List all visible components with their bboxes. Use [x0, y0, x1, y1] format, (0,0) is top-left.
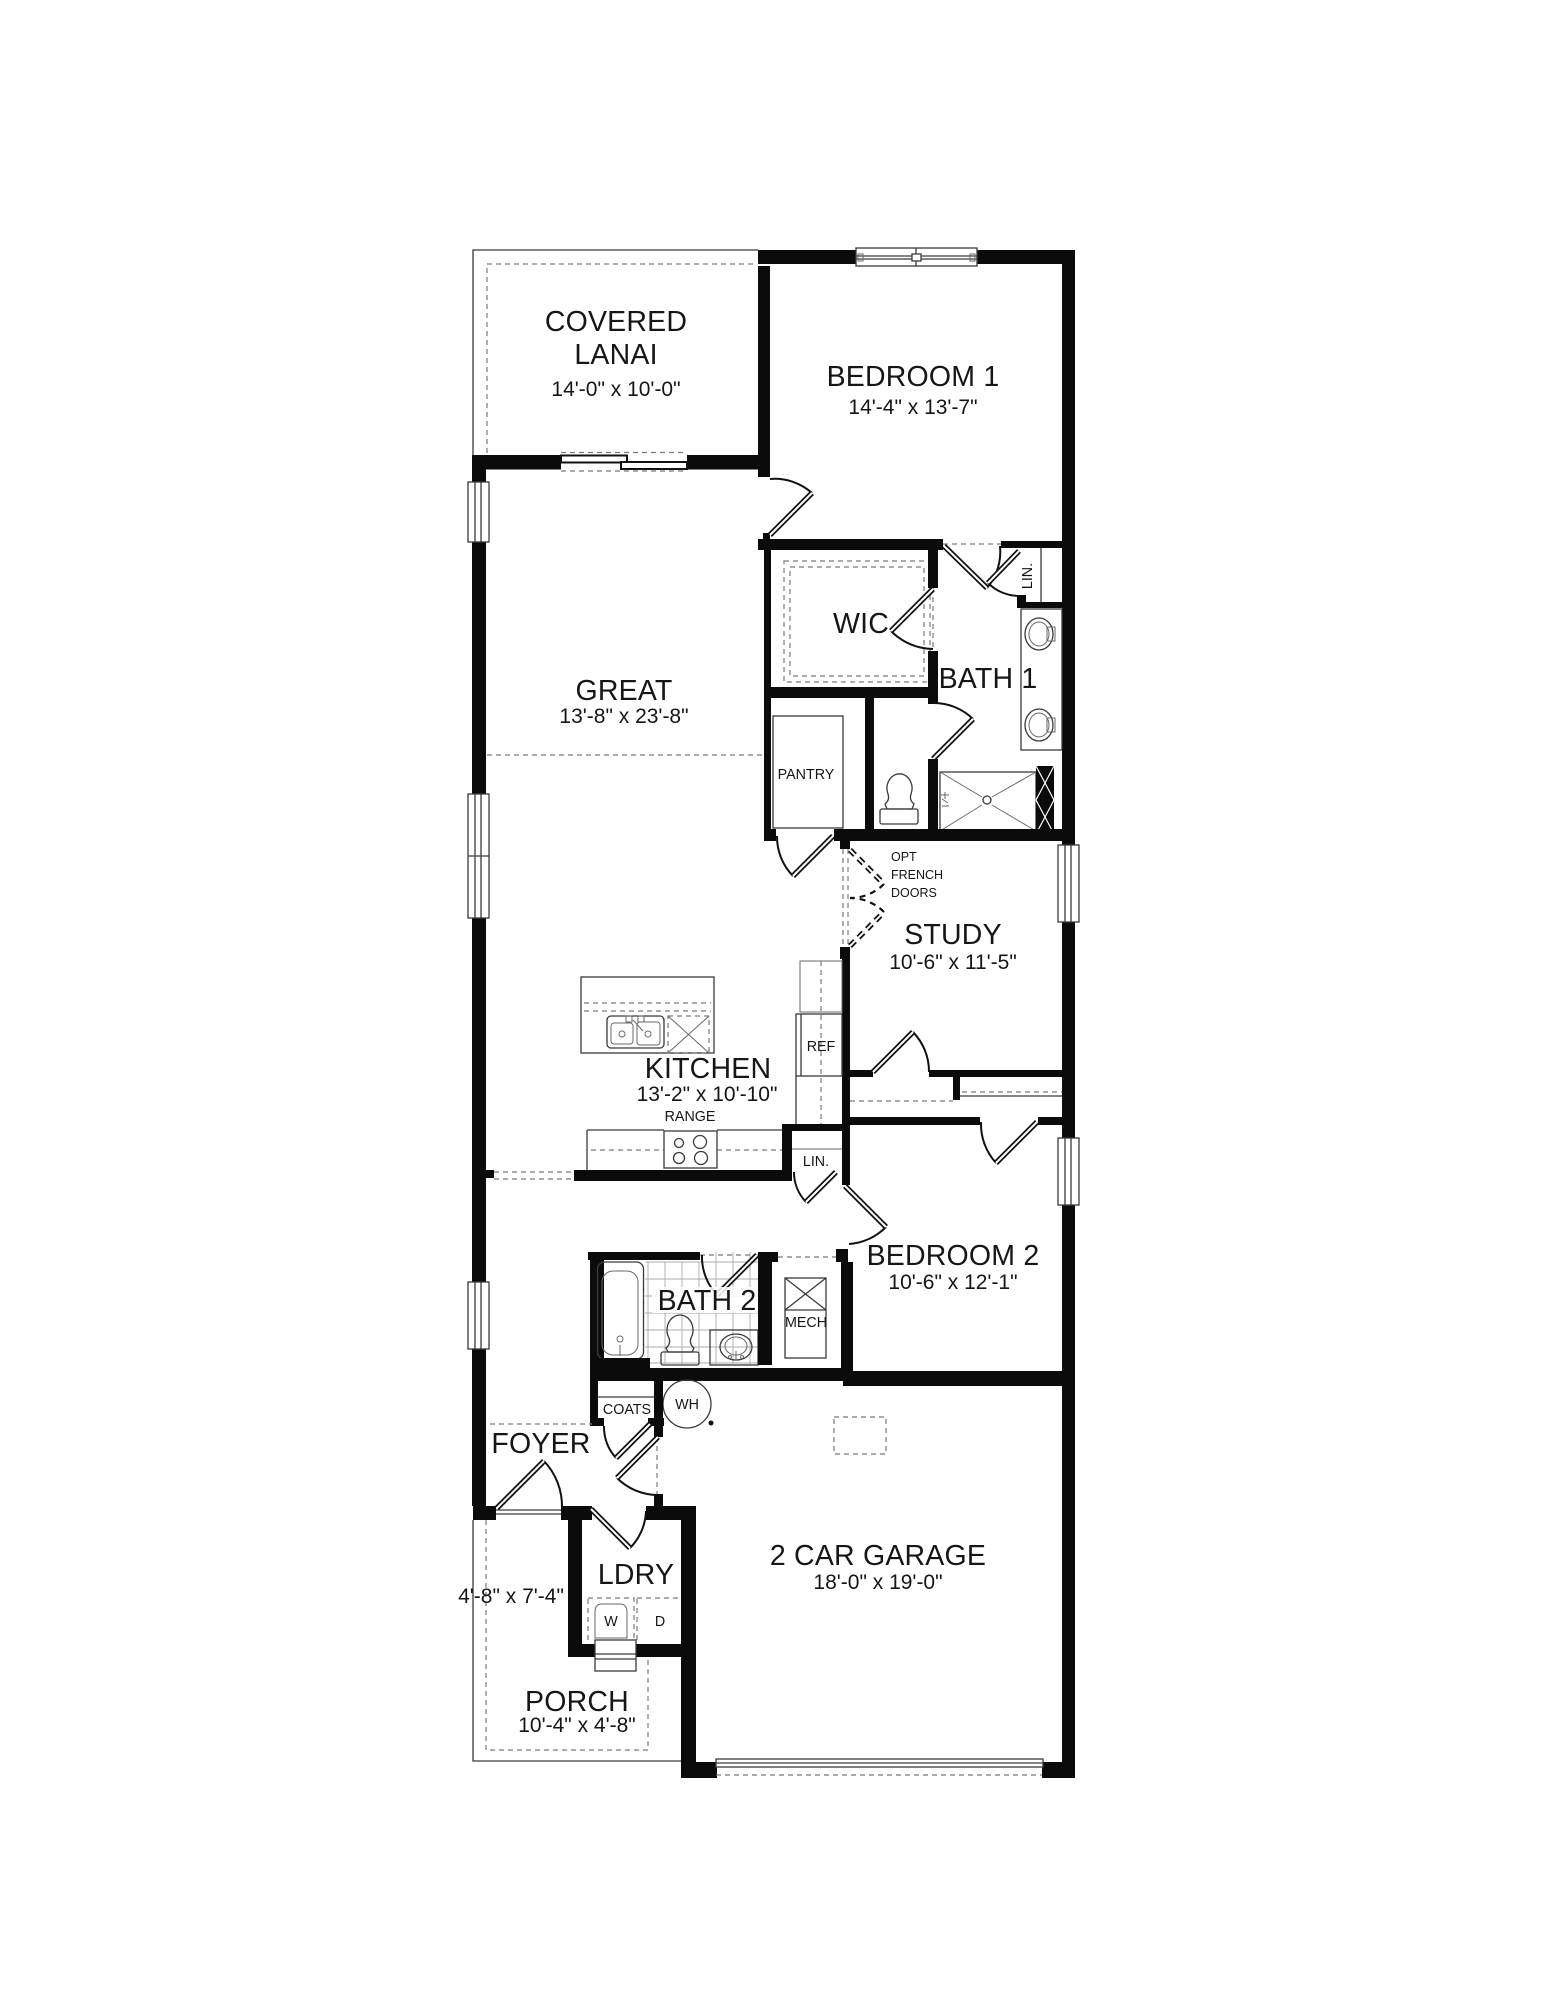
svg-text:MECH: MECH [785, 1315, 827, 1331]
svg-text:LIN.: LIN. [1020, 563, 1036, 589]
svg-text:FOYER: FOYER [491, 1428, 590, 1460]
svg-text:W: W [604, 1614, 618, 1630]
svg-text:COATS: COATS [603, 1402, 651, 1418]
svg-text:PANTRY: PANTRY [778, 767, 835, 783]
svg-text:BATH 2: BATH 2 [658, 1285, 757, 1317]
svg-text:10'-6" x 11'-5": 10'-6" x 11'-5" [889, 951, 1017, 974]
svg-text:STUDY: STUDY [904, 919, 1002, 951]
svg-text:14'-4" x 13'-7": 14'-4" x 13'-7" [848, 396, 977, 419]
svg-text:BEDROOM 1: BEDROOM 1 [827, 361, 1000, 393]
svg-text:18'-0" x 19'-0": 18'-0" x 19'-0" [813, 1571, 942, 1594]
svg-text:KITCHEN: KITCHEN [645, 1053, 772, 1085]
svg-text:LDRY: LDRY [598, 1559, 674, 1591]
svg-text:10'-6" x 12'-1": 10'-6" x 12'-1" [888, 1271, 1017, 1294]
svg-text:13'-8" x 23'-8": 13'-8" x 23'-8" [559, 705, 688, 728]
svg-text:DOORS: DOORS [891, 886, 937, 900]
svg-text:RANGE: RANGE [665, 1109, 716, 1125]
svg-text:LIN.: LIN. [803, 1154, 829, 1170]
svg-text:14'-0" x 10'-0": 14'-0" x 10'-0" [551, 378, 680, 401]
svg-text:D: D [655, 1614, 665, 1630]
svg-text:GREAT: GREAT [575, 675, 672, 707]
svg-text:BATH 1: BATH 1 [939, 663, 1038, 695]
svg-text:OPT: OPT [891, 850, 917, 864]
svg-text:WIC: WIC [833, 608, 889, 640]
svg-text:COVERED: COVERED [545, 306, 687, 338]
svg-text:10'-4" x 4'-8": 10'-4" x 4'-8" [518, 1714, 635, 1737]
svg-text:4'-8" x 7'-4": 4'-8" x 7'-4" [458, 1585, 564, 1608]
svg-text:FRENCH: FRENCH [891, 868, 943, 882]
svg-text:BEDROOM 2: BEDROOM 2 [867, 1240, 1040, 1272]
svg-text:REF: REF [807, 1039, 836, 1055]
svg-text:WH: WH [675, 1397, 699, 1413]
svg-text:LANAI: LANAI [574, 339, 657, 371]
svg-text:2 CAR GARAGE: 2 CAR GARAGE [770, 1540, 986, 1572]
svg-text:13'-2" x 10'-10": 13'-2" x 10'-10" [637, 1083, 778, 1106]
